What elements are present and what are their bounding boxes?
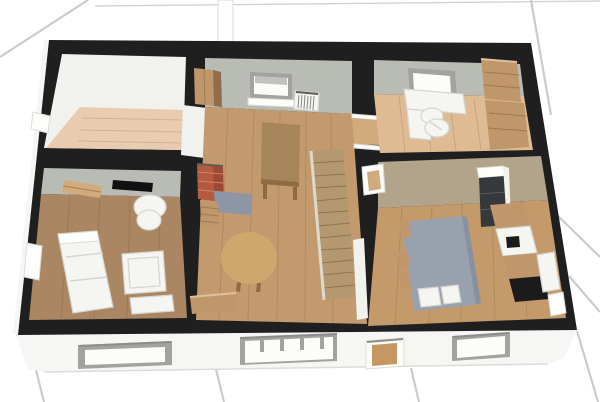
- room-living: [24, 168, 187, 320]
- stool: [398, 251, 410, 269]
- floorplan-3d-render[interactable]: [0, 0, 600, 402]
- hearth-mat: [214, 191, 252, 215]
- left-wall-window-ledge: [31, 112, 50, 133]
- room-office: [374, 59, 533, 153]
- left-wall-window-ledge: [24, 243, 42, 280]
- front-window-1: [78, 341, 172, 369]
- floorplan-3d-viewport[interactable]: [0, 0, 600, 402]
- stool: [399, 221, 411, 238]
- doorway-to-hall: [181, 105, 207, 158]
- stool: [399, 271, 411, 289]
- front-window-multipane: [240, 334, 337, 365]
- radiator: [294, 91, 319, 111]
- coffee-table: [122, 251, 166, 294]
- hall-window: [248, 72, 294, 107]
- chimney-stack: [218, 0, 233, 44]
- wall-return: [548, 292, 566, 316]
- living-back-wall: [41, 168, 181, 197]
- chair: [418, 287, 441, 307]
- room-kitchen: [362, 156, 566, 326]
- side-bench: [130, 295, 174, 314]
- front-entry-door: [366, 338, 404, 369]
- front-window-3: [452, 332, 510, 361]
- doorway-from-hall: [362, 164, 385, 195]
- chair: [441, 285, 461, 304]
- sink: [506, 236, 520, 248]
- wardrobe: [194, 68, 222, 107]
- drawer-chest: [200, 200, 219, 229]
